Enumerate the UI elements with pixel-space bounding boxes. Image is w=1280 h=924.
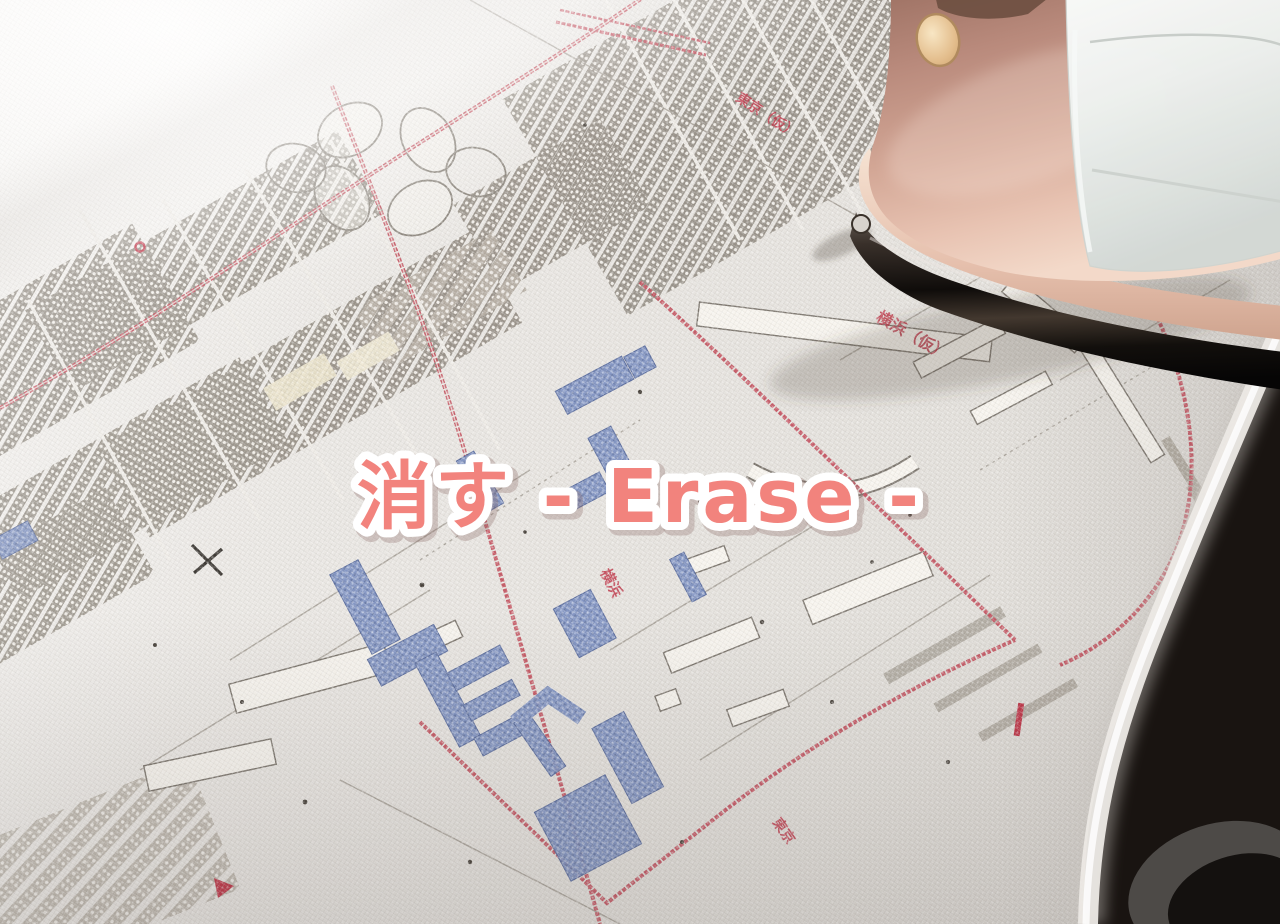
iron-tip-rivet xyxy=(852,215,870,233)
photo-scene: 東京（仮） 横浜（仮） 横浜 東京 xyxy=(0,0,1280,924)
iron xyxy=(761,0,1280,426)
foreground xyxy=(0,0,1280,924)
background-shadow xyxy=(1085,322,1280,924)
